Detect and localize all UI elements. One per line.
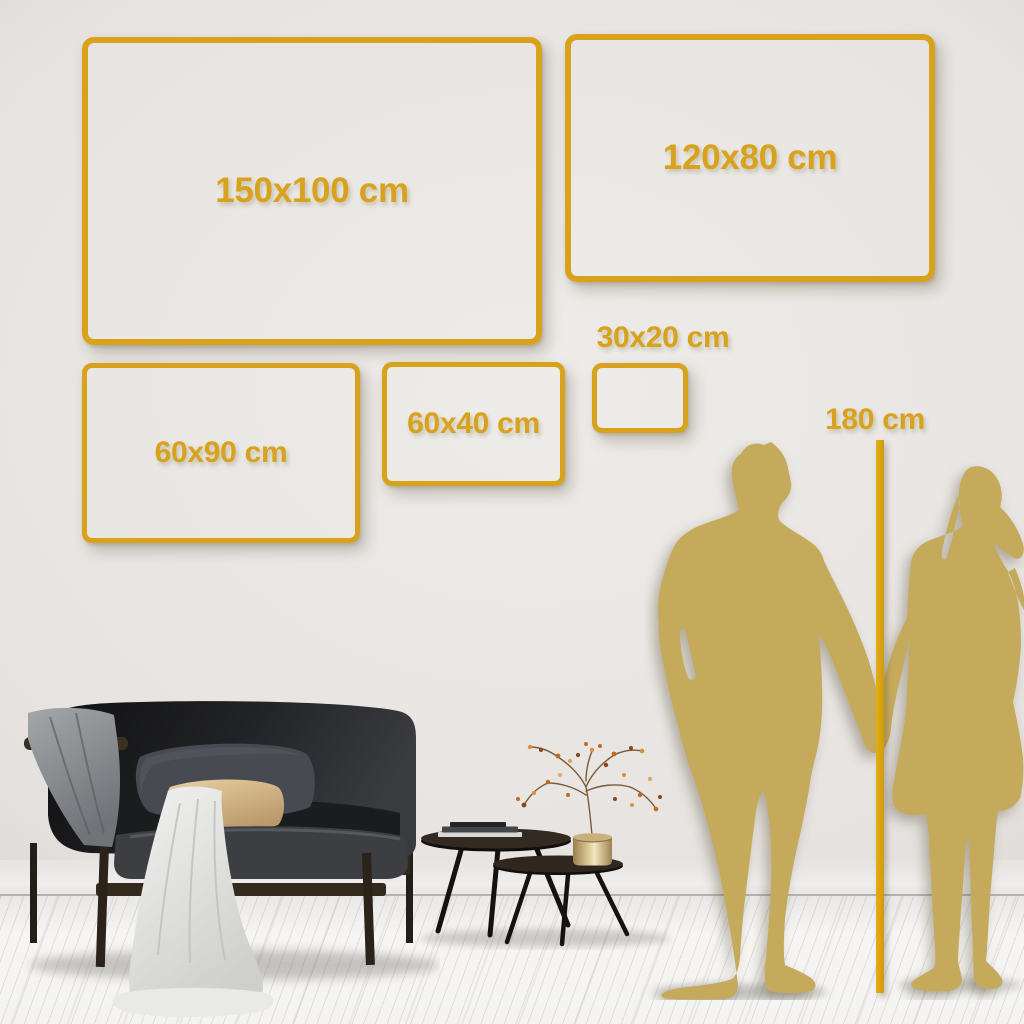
- woman-silhouette: [869, 466, 1024, 991]
- tables-floor-shadow: [420, 929, 670, 947]
- book-gray: [442, 827, 518, 833]
- size-label-60x90: 60x90 cm: [155, 436, 288, 470]
- height-marker-line: [876, 440, 884, 993]
- size-guide-scene: 150x100 cm 120x80 cm 60x90 cm 60x40 cm 3…: [0, 0, 1024, 1024]
- size-label-60x40: 60x40 cm: [407, 407, 540, 441]
- man-silhouette: [658, 442, 888, 1000]
- sofa-illustration: [20, 695, 440, 1024]
- white-throw-pool: [113, 988, 274, 1017]
- size-label-30x20-wrap: 30x20 cm: [563, 321, 763, 355]
- size-label-30x20: 30x20 cm: [597, 321, 730, 354]
- height-marker-label-wrap: 180 cm: [775, 403, 975, 437]
- size-frame-30x20: [592, 363, 688, 433]
- brass-vase-rim: [573, 833, 612, 841]
- sofa-front-rail: [96, 883, 386, 896]
- size-label-150x100: 150x100 cm: [215, 171, 409, 211]
- gray-blanket: [28, 708, 120, 847]
- size-frame-60x90: 60x90 cm: [82, 363, 360, 543]
- couple-silhouette: [645, 440, 1024, 1000]
- dried-branch-stems: [524, 747, 656, 835]
- book-black: [450, 822, 506, 827]
- size-label-120x80: 120x80 cm: [663, 138, 837, 178]
- size-frame-60x40: 60x40 cm: [382, 362, 565, 486]
- book-pages: [438, 832, 522, 837]
- sofa-rear-left-leg: [30, 843, 37, 943]
- size-frame-150x100: 150x100 cm: [82, 37, 542, 345]
- sofa-front-left-leg: [96, 845, 109, 967]
- size-frame-120x80: 120x80 cm: [565, 34, 935, 282]
- height-marker-label: 180 cm: [825, 403, 925, 436]
